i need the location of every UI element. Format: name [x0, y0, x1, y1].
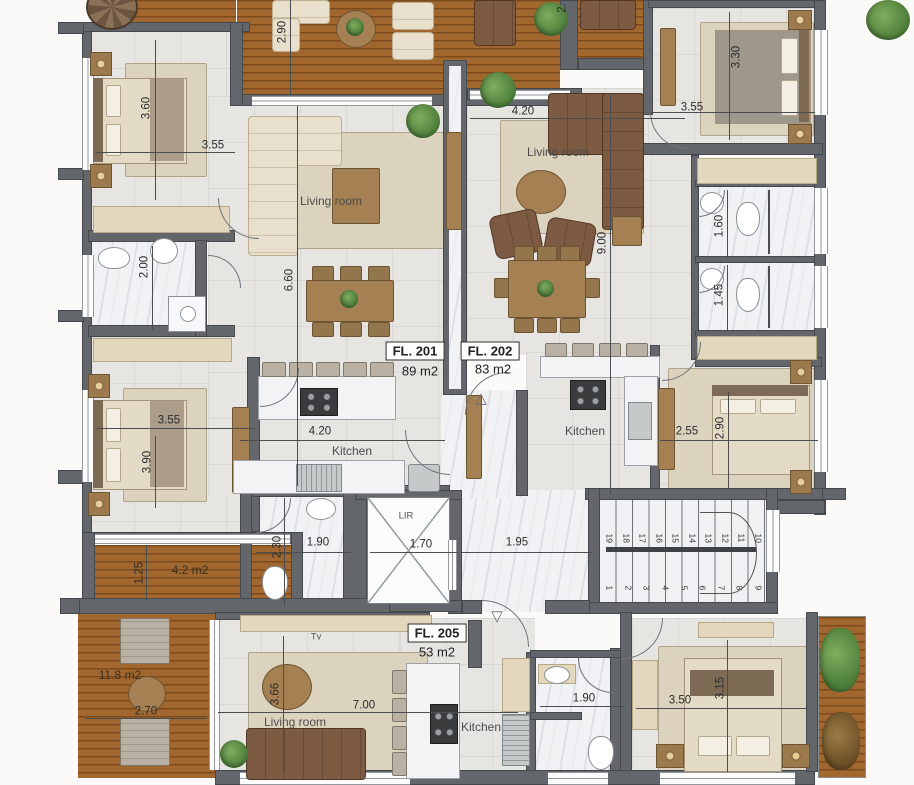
dim-bedroom1-width: 3.55 — [202, 140, 224, 152]
stair-step-number: 2 — [621, 586, 633, 595]
dimension-line — [660, 440, 818, 441]
stair-step-number: 1 — [603, 586, 615, 595]
pillow — [781, 80, 798, 116]
dim-bedroom2-width: 3.55 — [158, 415, 180, 427]
stair-step-number: 3 — [640, 586, 652, 595]
toilet — [736, 202, 760, 236]
sink — [150, 238, 178, 264]
wall — [695, 256, 815, 263]
wall — [82, 532, 95, 600]
dimension-line — [290, 0, 291, 94]
dimension-line — [155, 40, 156, 200]
dimension-line — [727, 265, 728, 331]
dim-balcony-small: 1.25 — [134, 562, 146, 584]
balcony-large-area: 11.8 m2 — [99, 668, 141, 682]
dining-chair — [340, 322, 362, 337]
kitchen202-stove — [570, 380, 606, 410]
bar-stool — [545, 343, 567, 357]
potted-plant — [220, 740, 248, 768]
unit-205-label: FL. 205 — [408, 624, 467, 643]
wall — [643, 0, 653, 115]
pier — [822, 488, 846, 500]
nightstand — [788, 124, 812, 144]
kitchen201-stove — [300, 388, 338, 416]
bar-stool — [316, 362, 340, 377]
dining-chair — [340, 266, 362, 281]
basin — [306, 498, 336, 520]
dimension-line — [462, 552, 592, 553]
pillow — [106, 408, 121, 442]
dimension-line — [95, 152, 235, 153]
dining-chair — [514, 246, 534, 261]
kitchen202-label: Kitchen — [565, 424, 605, 438]
dim-living205-width: 7.00 — [353, 700, 375, 712]
dim-bath201: 2.00 — [139, 256, 151, 278]
stair-numbers-upper: 19181716151413121110 — [604, 532, 762, 544]
wall — [240, 490, 252, 614]
dim-bath-a: 1.60 — [714, 215, 726, 237]
dimension-line — [540, 706, 625, 707]
wardrobe-a — [697, 158, 817, 184]
dimension-line — [636, 708, 808, 709]
dim-bedroom3-depth: 3.30 — [731, 46, 743, 68]
pier — [58, 470, 84, 484]
toilet — [588, 736, 614, 770]
bar-stool — [370, 362, 394, 377]
dimension-line — [218, 712, 518, 713]
unit-201-label: FL. 201 — [386, 342, 445, 361]
nightstand — [88, 374, 110, 398]
living201-label: Living room — [300, 194, 362, 208]
bar-stool — [343, 362, 367, 377]
hall-cabinet — [446, 132, 462, 230]
stair-step-number: 5 — [677, 586, 689, 595]
dining-chair — [368, 322, 390, 337]
entry-marker: ▽ — [491, 607, 503, 625]
lounger — [120, 618, 170, 664]
dimension-line — [650, 112, 815, 113]
dining-chair — [368, 266, 390, 281]
stair-step-number: 16 — [652, 534, 664, 543]
wall — [588, 488, 600, 614]
dining-chair — [560, 318, 580, 333]
nightstand — [88, 492, 110, 516]
dimension-line — [155, 436, 156, 508]
stair-step-number: 14 — [685, 534, 697, 543]
pillow — [781, 38, 798, 74]
dimension-line — [85, 718, 207, 719]
stair-step-number: 6 — [696, 586, 708, 595]
dining-chair — [560, 246, 580, 261]
floor-plan: 19181716151413121110 123456789 ▽ △ 2.90 … — [0, 0, 914, 785]
potted-plant — [346, 18, 364, 36]
dining-chair — [537, 246, 557, 261]
bedroom3-wardrobe — [660, 28, 676, 106]
dim-bedroom5-depth: 3.15 — [715, 677, 727, 699]
window — [814, 30, 828, 115]
wall — [230, 22, 243, 106]
dim-kitchen201-width: 4.20 — [309, 426, 331, 438]
living202-coffee-table — [516, 170, 566, 214]
dim-living202-width: 4.20 — [512, 106, 534, 118]
stair-step-number: 8 — [733, 586, 745, 595]
wall — [468, 620, 482, 668]
elevator-door — [448, 540, 457, 590]
balcony-chair — [392, 32, 434, 60]
bar-stool — [626, 343, 648, 357]
dim-bedroom5-width: 3.50 — [669, 695, 691, 707]
window — [766, 510, 780, 572]
wall — [588, 602, 778, 614]
dining-chair — [537, 318, 557, 333]
stair-turn-arc — [700, 512, 757, 594]
wall — [88, 325, 235, 337]
living202-sofa-right — [602, 93, 644, 230]
potted-plant — [480, 72, 516, 108]
kitchen202-counter-top — [540, 356, 660, 378]
stair-step-number: 11 — [735, 534, 747, 543]
kitchen205-stove — [430, 704, 458, 744]
planter-palm — [820, 628, 860, 692]
pier — [58, 168, 84, 180]
kitchen205-label: Kitchen — [461, 720, 501, 734]
dim-bedroom1-depth: 3.60 — [141, 97, 153, 119]
kitchen201-sink — [296, 464, 342, 492]
window — [548, 772, 608, 785]
window — [814, 380, 828, 472]
window — [814, 266, 828, 328]
living202-label: Living room — [527, 145, 589, 159]
dimension-line — [297, 106, 298, 486]
balcony-slider — [209, 620, 220, 770]
entry-marker: △ — [475, 389, 487, 407]
kitchen205-counter — [502, 658, 530, 712]
dining-chair — [514, 318, 534, 333]
nightstand — [790, 470, 812, 494]
dining-chair — [312, 266, 334, 281]
dimension-line — [470, 118, 685, 119]
stair-step-number: 10 — [751, 534, 763, 543]
pillow — [106, 448, 121, 482]
dim-bedroom4-depth: 2.90 — [715, 417, 727, 439]
stair-step-number: 18 — [619, 534, 631, 543]
corner-plant — [866, 0, 910, 40]
wall — [545, 600, 590, 614]
unit-201-area: 89 m2 — [402, 364, 438, 379]
tv-cabinet — [240, 615, 432, 632]
toilet — [98, 247, 130, 269]
window — [814, 188, 828, 254]
dim-hall-right: 1.95 — [506, 537, 528, 549]
dim-bedroom3-width: 3.55 — [681, 102, 703, 114]
kitchen205-sink — [502, 714, 530, 766]
bedroom5-shelf — [698, 622, 774, 638]
dimension-line — [370, 552, 458, 553]
stair-step-number: 13 — [702, 534, 714, 543]
kitchen202-sink — [628, 402, 652, 440]
tv-label: Tv — [311, 632, 322, 643]
window — [82, 255, 94, 317]
lift-label: LIR — [399, 511, 414, 522]
living205-sofa — [246, 728, 366, 780]
nightstand — [782, 744, 810, 768]
dimension-line — [727, 640, 728, 772]
dimension-line — [610, 94, 611, 494]
stair-step-number: 15 — [669, 534, 681, 543]
stair-step-number: 12 — [718, 534, 730, 543]
dim-lift: 1.70 — [410, 539, 432, 551]
toilet — [736, 278, 760, 312]
bedroom5-wardrobe — [632, 660, 658, 730]
unit-205-area: 53 m2 — [419, 645, 455, 660]
dimension-line — [729, 12, 730, 140]
dimension-line — [727, 190, 728, 258]
bedroom3-headboard — [799, 30, 809, 122]
balcony-chair — [392, 2, 434, 30]
bedroom5-headboard — [690, 670, 774, 696]
bar-stool — [392, 726, 407, 750]
dining-chair — [312, 322, 334, 337]
lounger — [120, 718, 170, 766]
upper-deck-strip — [128, 0, 236, 22]
sliding-door — [252, 96, 432, 106]
dim-bedroom2-depth: 3.90 — [142, 451, 154, 473]
balcony-sofa-right — [580, 0, 636, 30]
dim-balcony-large: 2.70 — [135, 706, 157, 718]
dim-top-partial: 2. — [557, 3, 569, 13]
dim-bedroom4-width: 2.55 — [676, 426, 698, 438]
balcony-small-area: 4.2 m2 — [172, 563, 209, 577]
stair-step-number: 17 — [636, 534, 648, 543]
wardrobe-b — [697, 336, 817, 360]
dimension-line — [146, 545, 147, 601]
stair-numbers-lower: 123456789 — [604, 584, 762, 596]
wall — [530, 650, 622, 658]
bedroom2-headboard — [93, 400, 103, 488]
hall-closet — [93, 338, 232, 362]
unit-202-area: 83 m2 — [475, 362, 511, 377]
stair-step-number: 9 — [752, 586, 764, 595]
bedroom1-closet — [93, 206, 230, 233]
bar-stool — [572, 343, 594, 357]
shower-screen — [768, 266, 770, 328]
window — [660, 772, 795, 785]
wall — [585, 488, 825, 500]
bar-stool — [392, 670, 407, 694]
balcony-lounge — [474, 0, 516, 46]
bar-stool — [392, 752, 407, 776]
wall — [578, 58, 650, 70]
dim-balcony-top: 2.90 — [277, 21, 289, 43]
pillow — [760, 399, 796, 414]
bar-stool — [392, 698, 407, 722]
dim-wc205: 2.30 — [272, 536, 284, 558]
wall — [530, 712, 582, 720]
kitchen201-label: Kitchen — [332, 444, 372, 458]
dim-bath205: 1.90 — [573, 693, 595, 705]
nightstand — [656, 744, 684, 768]
wall — [648, 0, 822, 8]
dimension-line — [283, 636, 284, 771]
window-band — [95, 534, 290, 544]
stair-step-number: 7 — [714, 586, 726, 595]
shower-screen — [768, 190, 770, 254]
dim-living205-depth: 3.66 — [270, 683, 282, 705]
pillow — [720, 399, 756, 414]
pillow — [736, 736, 770, 756]
bedroom4-wardrobe — [658, 388, 675, 470]
pillow — [106, 85, 121, 117]
table-plant — [340, 290, 358, 308]
bedroom1-headboard — [93, 78, 103, 162]
stair-step-number: 19 — [603, 534, 615, 543]
dim-hall-left: 1.90 — [307, 537, 329, 549]
planter-shrub — [822, 712, 860, 770]
nightstand — [788, 10, 812, 30]
dimension-line — [256, 552, 351, 553]
wall — [291, 532, 303, 600]
nightstand — [90, 52, 112, 76]
dim-living202-depth: 9.00 — [597, 232, 609, 254]
shower-drain — [180, 306, 196, 322]
pier — [58, 22, 84, 34]
wall — [516, 390, 528, 496]
dining-chair — [494, 278, 509, 298]
pier — [60, 598, 80, 614]
dining-chair — [585, 278, 600, 298]
wall — [462, 600, 482, 614]
dimension-line — [240, 440, 445, 441]
table-plant — [537, 280, 554, 297]
dimension-line — [95, 428, 255, 429]
potted-plant — [406, 104, 440, 138]
pier — [58, 310, 84, 322]
dim-bath-b: 1.45 — [714, 284, 726, 306]
bedroom4-headboard — [712, 385, 808, 396]
dim-living201-depth: 6.60 — [284, 269, 296, 291]
stair-step-number: 4 — [658, 586, 670, 595]
unit-202-label: FL. 202 — [461, 342, 520, 361]
nightstand — [790, 360, 812, 384]
dimension-line — [728, 392, 729, 488]
side-table — [612, 216, 642, 246]
sink — [544, 666, 570, 684]
nightstand — [90, 164, 112, 188]
living205-label: Living room — [264, 715, 326, 729]
dimension-line — [152, 246, 153, 330]
